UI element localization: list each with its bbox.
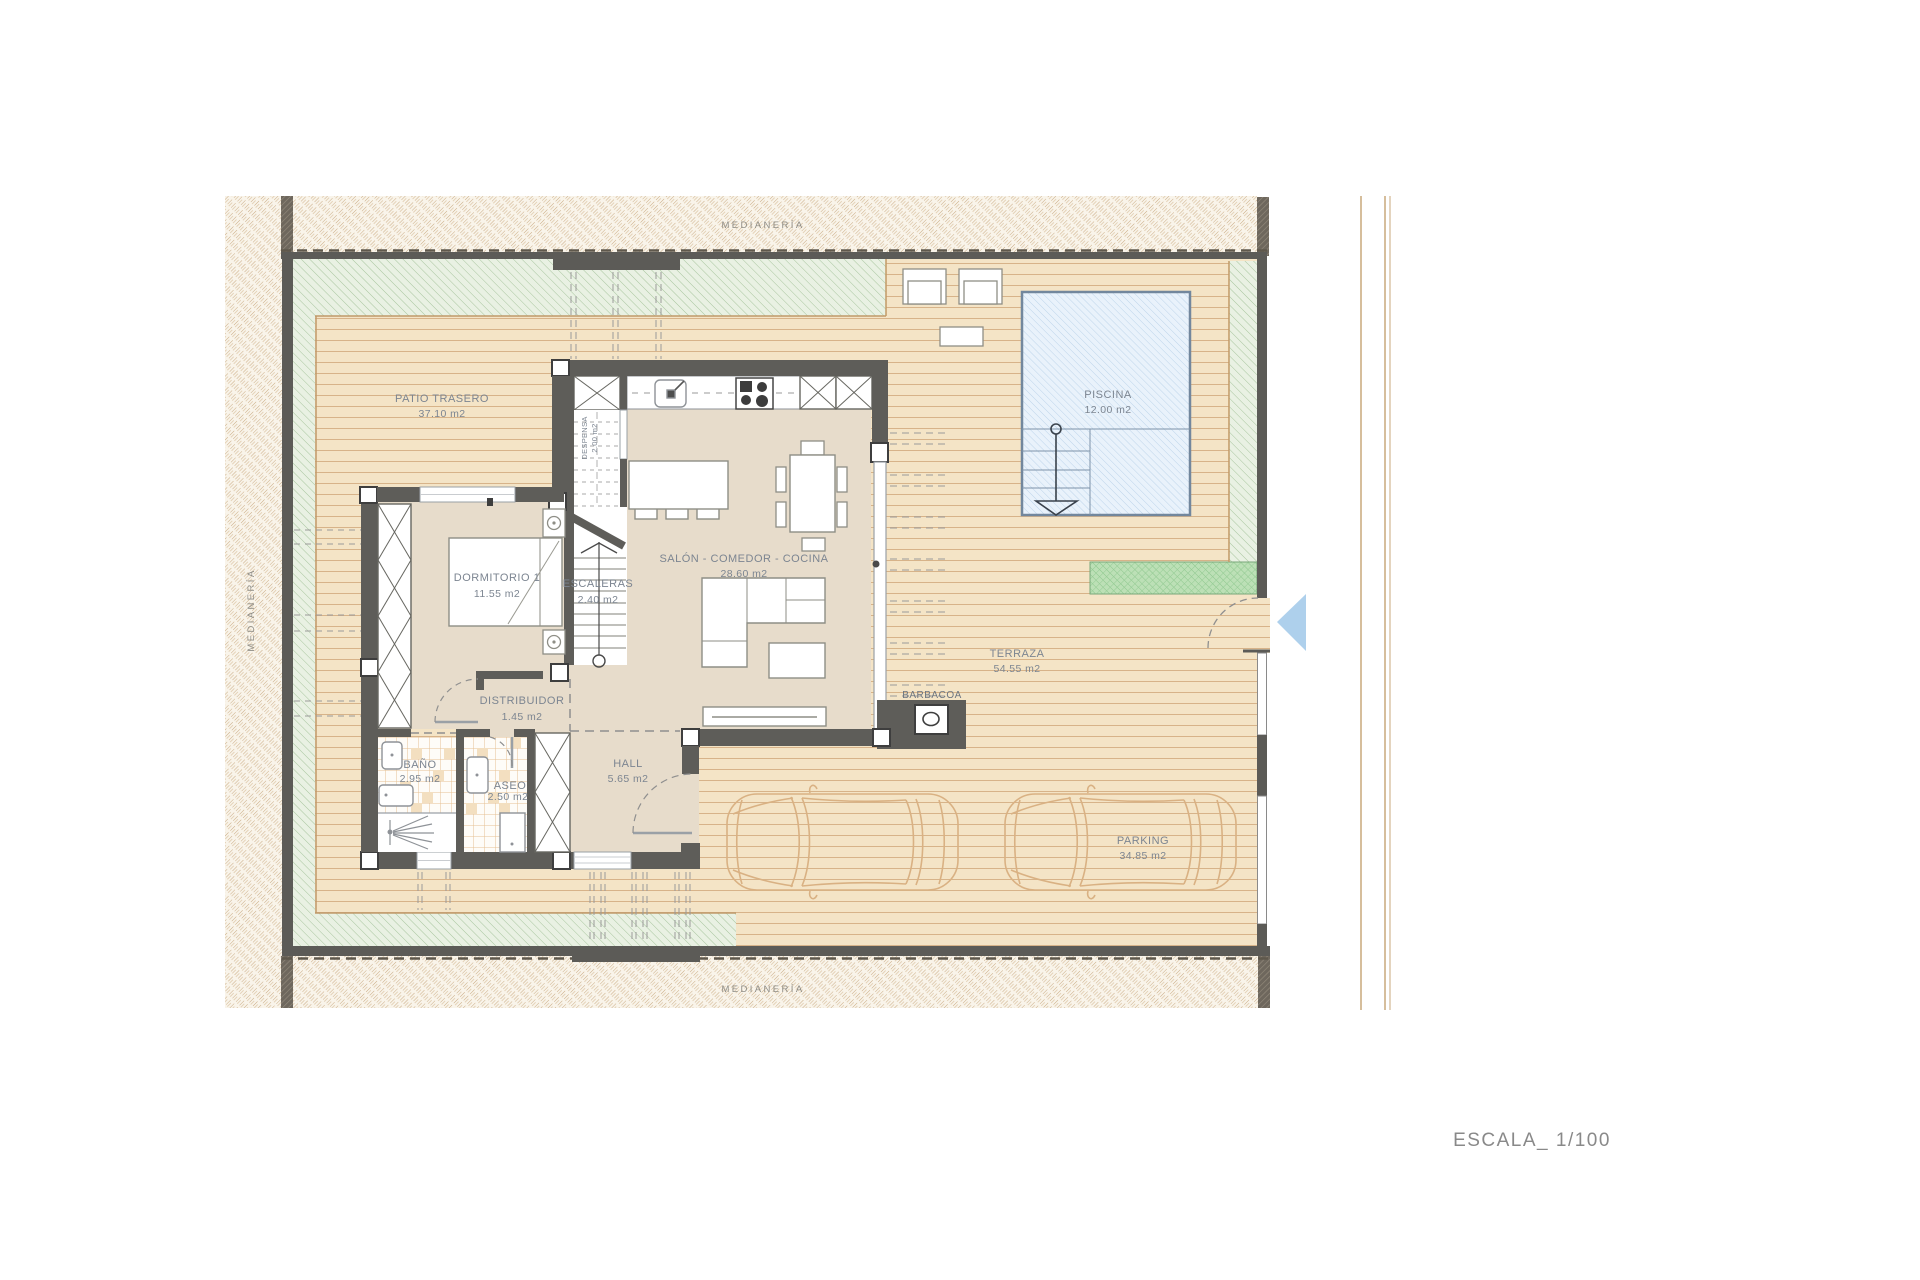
svg-text:PATIO TRASERO: PATIO TRASERO bbox=[395, 393, 489, 405]
svg-text:2.95 m2: 2.95 m2 bbox=[400, 773, 441, 785]
svg-text:DORMITORIO 1: DORMITORIO 1 bbox=[454, 572, 540, 584]
svg-text:PARKING: PARKING bbox=[1117, 835, 1169, 847]
svg-text:12.00 m2: 12.00 m2 bbox=[1085, 404, 1132, 416]
svg-text:1.45 m2: 1.45 m2 bbox=[502, 711, 543, 723]
svg-text:37.10 m2: 37.10 m2 bbox=[419, 408, 466, 420]
svg-text:MEDIANERÍA: MEDIANERÍA bbox=[721, 984, 804, 995]
svg-text:MEDIANERÍA: MEDIANERÍA bbox=[721, 220, 804, 231]
svg-text:2.40 m2: 2.40 m2 bbox=[578, 594, 619, 606]
svg-text:ESCALA_ 1/100: ESCALA_ 1/100 bbox=[1453, 1130, 1611, 1151]
svg-text:5.65 m2: 5.65 m2 bbox=[608, 773, 649, 785]
svg-text:ESCALERAS: ESCALERAS bbox=[563, 578, 634, 590]
svg-text:TERRAZA: TERRAZA bbox=[990, 648, 1045, 660]
svg-text:HALL: HALL bbox=[613, 758, 643, 770]
svg-text:PISCINA: PISCINA bbox=[1084, 389, 1132, 401]
svg-text:SALÓN - COMEDOR - COCINA: SALÓN - COMEDOR - COCINA bbox=[659, 552, 828, 565]
svg-text:28.60 m2: 28.60 m2 bbox=[721, 568, 768, 580]
svg-text:2.50 m2: 2.50 m2 bbox=[488, 791, 529, 803]
svg-text:2.00 m2: 2.00 m2 bbox=[590, 423, 599, 452]
svg-text:MEDIANERÍA: MEDIANERÍA bbox=[246, 568, 257, 651]
svg-text:11.55 m2: 11.55 m2 bbox=[474, 588, 520, 600]
svg-text:DESPENSA: DESPENSA bbox=[580, 416, 589, 459]
svg-text:BARBACOA: BARBACOA bbox=[902, 690, 962, 701]
svg-text:34.85 m2: 34.85 m2 bbox=[1120, 850, 1167, 862]
svg-text:54.55 m2: 54.55 m2 bbox=[994, 663, 1041, 675]
svg-text:DISTRIBUIDOR: DISTRIBUIDOR bbox=[480, 695, 565, 707]
svg-text:BAÑO: BAÑO bbox=[403, 758, 436, 771]
